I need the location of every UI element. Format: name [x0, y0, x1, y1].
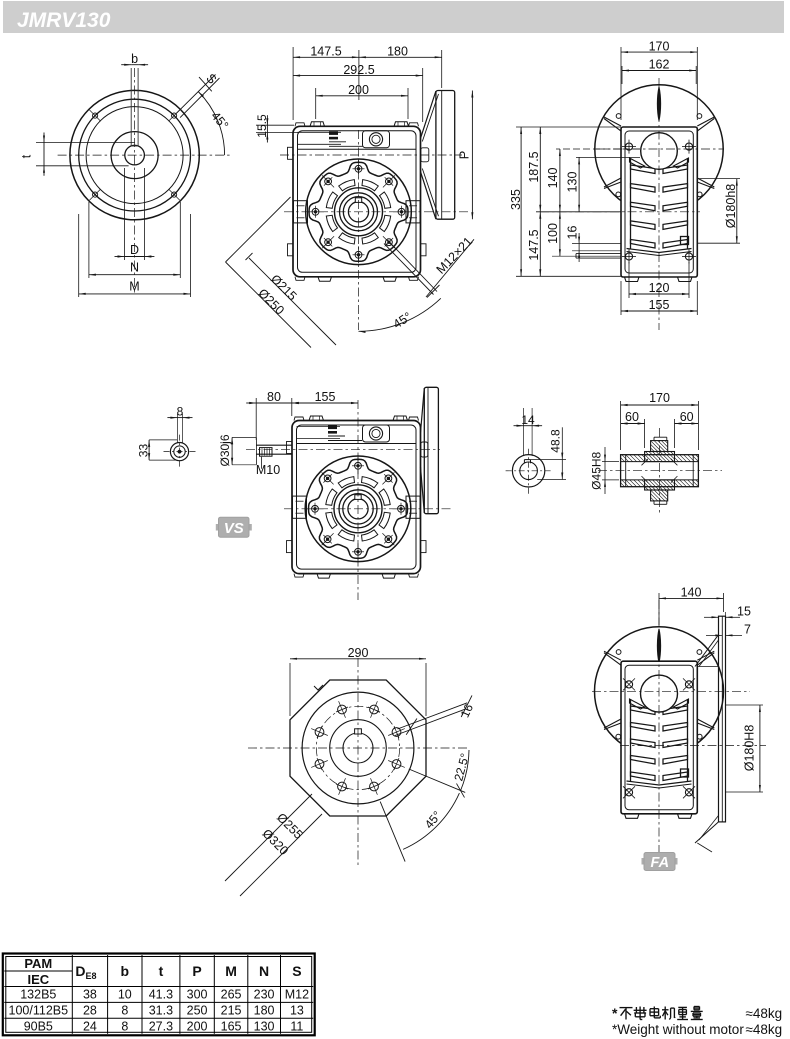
svg-text:300: 300: [187, 988, 208, 1002]
svg-text:≈48kg: ≈48kg: [746, 1022, 783, 1037]
svg-text:S: S: [292, 963, 301, 979]
svg-text:IEC: IEC: [27, 972, 49, 987]
svg-text:31.3: 31.3: [149, 1004, 173, 1018]
svg-text:265: 265: [221, 988, 242, 1002]
svg-text:Ø30j6: Ø30j6: [218, 434, 232, 466]
svg-text:16: 16: [458, 702, 476, 720]
svg-text:M: M: [129, 279, 139, 293]
svg-text:24: 24: [83, 1020, 97, 1034]
svg-text:16: 16: [566, 226, 580, 240]
svg-text:200: 200: [187, 1020, 208, 1034]
svg-text:45°: 45°: [391, 309, 414, 331]
svg-text:*: *: [612, 1005, 618, 1021]
svg-text:15: 15: [737, 605, 751, 619]
svg-text:60: 60: [625, 410, 639, 424]
svg-text:130: 130: [566, 172, 580, 193]
svg-text:60: 60: [680, 410, 694, 424]
svg-text:8: 8: [177, 405, 184, 419]
svg-text:JMRV130: JMRV130: [17, 9, 111, 32]
svg-text:PAM: PAM: [24, 956, 52, 971]
svg-text:290: 290: [348, 646, 369, 660]
svg-text:N: N: [130, 260, 139, 274]
svg-text:*Weight without motor: *Weight without motor: [612, 1022, 744, 1037]
svg-text:M12: M12: [285, 988, 309, 1002]
svg-text:P: P: [456, 151, 471, 160]
svg-text:≈48kg: ≈48kg: [746, 1006, 783, 1021]
svg-text:130: 130: [254, 1020, 275, 1034]
svg-text:132B5: 132B5: [20, 988, 56, 1002]
svg-text:D: D: [130, 243, 139, 257]
svg-text:Ø180h8: Ø180h8: [724, 184, 738, 229]
svg-text:Ø45H8: Ø45H8: [590, 451, 604, 489]
svg-text:147.5: 147.5: [310, 45, 341, 59]
svg-text:N: N: [259, 963, 269, 979]
svg-text:45°: 45°: [208, 109, 231, 132]
svg-text:8: 8: [121, 1004, 128, 1018]
svg-text:292.5: 292.5: [343, 63, 374, 77]
svg-text:165: 165: [221, 1020, 242, 1034]
svg-text:t: t: [159, 963, 164, 979]
svg-text:100: 100: [546, 223, 560, 244]
svg-text:b: b: [121, 963, 130, 979]
svg-text:48.8: 48.8: [548, 429, 562, 453]
svg-text:10: 10: [118, 988, 132, 1002]
svg-text:11: 11: [290, 1020, 303, 1034]
svg-text:M10: M10: [256, 463, 280, 477]
svg-text:7: 7: [744, 623, 751, 637]
svg-text:200: 200: [348, 83, 369, 97]
svg-text:41.3: 41.3: [149, 988, 173, 1002]
svg-text:8: 8: [121, 1020, 128, 1034]
svg-text:b: b: [131, 52, 138, 66]
svg-text:22.5°: 22.5°: [451, 752, 472, 783]
svg-text:147.5: 147.5: [527, 229, 541, 260]
svg-text:45°: 45°: [422, 808, 445, 831]
svg-text:170: 170: [649, 39, 670, 53]
svg-text:162: 162: [649, 58, 670, 72]
svg-text:M: M: [225, 963, 237, 979]
svg-text:t: t: [20, 154, 34, 158]
svg-text:230: 230: [254, 988, 275, 1002]
svg-text:VS: VS: [224, 520, 244, 537]
svg-text:14: 14: [521, 413, 535, 427]
svg-text:15.5: 15.5: [255, 114, 269, 138]
svg-text:120: 120: [649, 281, 670, 295]
svg-text:FA: FA: [651, 855, 670, 871]
svg-text:80: 80: [267, 390, 281, 404]
svg-text:M12×21: M12×21: [434, 234, 476, 277]
svg-text:180: 180: [254, 1004, 275, 1018]
svg-text:90B5: 90B5: [24, 1020, 53, 1034]
svg-text:28: 28: [83, 1004, 97, 1018]
svg-text:Ø180H8: Ø180H8: [743, 725, 757, 772]
svg-text:187.5: 187.5: [527, 151, 541, 182]
svg-text:155: 155: [315, 390, 336, 404]
svg-text:335: 335: [509, 189, 523, 210]
svg-text:250: 250: [187, 1004, 208, 1018]
svg-text:38: 38: [83, 988, 97, 1002]
svg-text:140: 140: [681, 586, 702, 600]
svg-text:140: 140: [546, 168, 560, 189]
svg-text:27.3: 27.3: [149, 1020, 173, 1034]
svg-text:P: P: [192, 963, 201, 979]
svg-text:170: 170: [649, 391, 670, 405]
svg-text:13: 13: [290, 1004, 304, 1018]
svg-text:DE8: DE8: [75, 963, 96, 981]
svg-text:215: 215: [221, 1004, 242, 1018]
svg-text:100/112B5: 100/112B5: [9, 1004, 69, 1018]
svg-text:180: 180: [387, 45, 408, 59]
svg-text:33: 33: [136, 444, 150, 458]
svg-text:155: 155: [649, 298, 670, 312]
